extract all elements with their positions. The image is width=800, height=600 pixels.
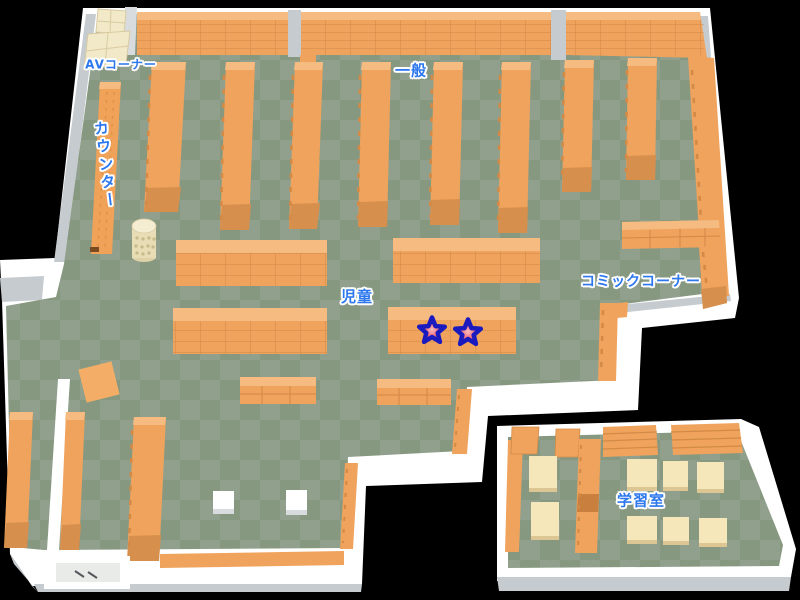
desk [627, 516, 657, 544]
white-table [286, 490, 307, 515]
white-table [213, 491, 234, 514]
small-shelf [377, 379, 451, 405]
rotary-rack [132, 219, 156, 262]
desk [529, 456, 557, 492]
aisle-shelf [289, 62, 323, 229]
entrance-alcove [44, 556, 130, 589]
low-shelf [393, 238, 540, 283]
study-room [497, 419, 796, 591]
library-floor-map: AVコーナーカウンター一般児童コミックコーナー学習室 [0, 0, 800, 600]
aisle-shelf [562, 60, 594, 192]
aisle-shelf [498, 62, 531, 233]
desk [699, 518, 727, 547]
wall-gap [551, 10, 566, 60]
wall-gap [288, 10, 301, 57]
map-canvas [0, 0, 800, 600]
desk [697, 462, 724, 493]
aisle-shelf [220, 62, 255, 230]
desk [663, 517, 689, 545]
aisle-shelf [626, 58, 657, 180]
low-shelf [173, 308, 327, 354]
desk [627, 459, 657, 491]
low-shelf-with-stars [388, 307, 516, 354]
desk [663, 461, 688, 491]
small-shelf [240, 377, 316, 404]
aisle-shelf [430, 62, 463, 225]
desk [531, 502, 559, 540]
low-shelf [176, 240, 327, 286]
divider-shelf [575, 439, 601, 553]
stacked-shelf [671, 423, 743, 455]
aisle-shelf [358, 62, 391, 227]
stacked-shelf [603, 425, 658, 457]
